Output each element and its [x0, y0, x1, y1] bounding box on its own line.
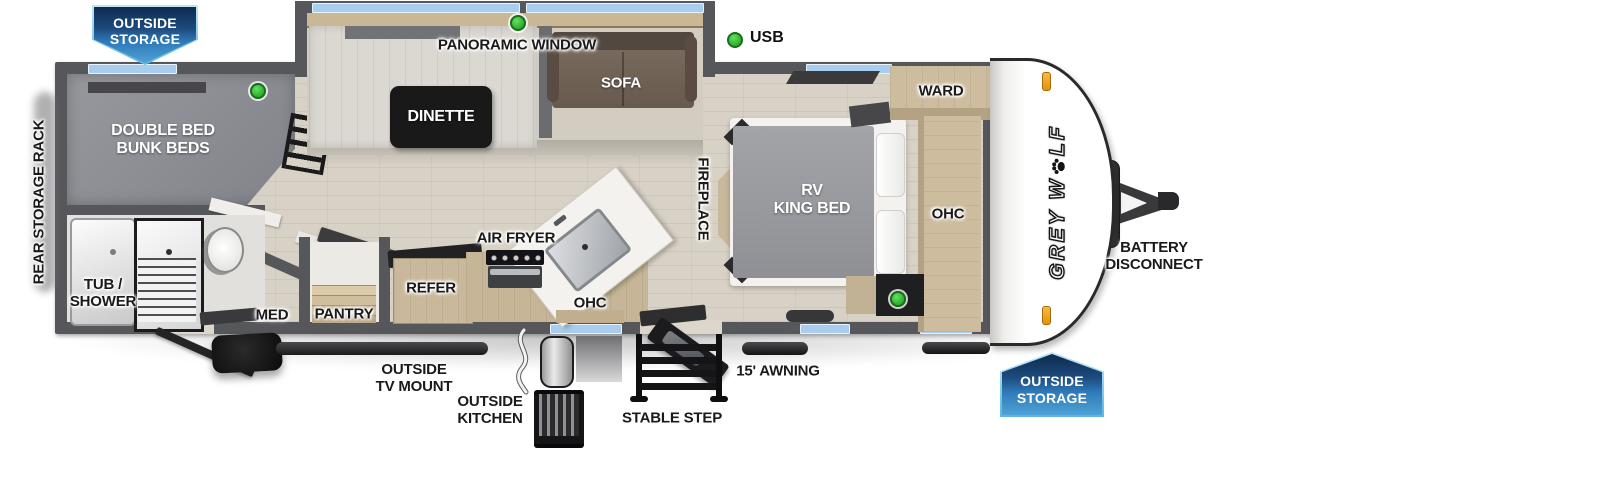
pantry-label: PANTRY — [315, 307, 374, 324]
battery-disconnect-label: BATTERY DISCONNECT — [1105, 240, 1202, 274]
panoramic-window-label: PANORAMIC WINDOW — [438, 38, 596, 55]
awning-label: 15' AWNING — [736, 364, 820, 381]
pantry-step-2 — [312, 295, 376, 305]
bedroom-ohc-cabinet — [918, 116, 981, 332]
bedroom-ohc-label: OHC — [932, 207, 965, 224]
stable-step-treads — [640, 344, 716, 392]
pantry-wall-left — [299, 237, 310, 322]
clearance-light-top — [1042, 72, 1051, 91]
tub-shower-label: TUB / SHOWER — [70, 277, 136, 311]
panoramic-window-left — [312, 3, 520, 13]
rear-storage-rack-label: REAR STORAGE RACK — [32, 120, 49, 285]
usb-indicator-dot — [890, 291, 906, 307]
outside-tv-mount-label: OUTSIDE TV MOUNT — [376, 362, 453, 396]
window-top-left — [88, 64, 177, 74]
panoramic-window-right — [526, 3, 704, 13]
fireplace-label: FIREPLACE — [694, 157, 711, 240]
outside-storage-badge-bottom: OUTSIDE STORAGE — [1000, 352, 1104, 417]
air-fryer-label: AIR FRYER — [477, 231, 555, 248]
usb-legend-dot — [727, 32, 743, 48]
outside-tv-mount-bar — [276, 342, 488, 355]
brand-logo: GREY W LF — [1045, 97, 1071, 307]
slideout-wall-left — [295, 1, 307, 77]
stable-step-foot-left — [630, 396, 648, 402]
paw-icon — [1050, 158, 1067, 175]
king-bed-label: RV KING BED — [774, 182, 851, 218]
wardrobe-label: WARD — [918, 84, 963, 101]
outside-grill-grate — [539, 394, 579, 436]
sofa-label: SOFA — [601, 76, 641, 93]
propane-tank — [540, 336, 574, 388]
bed-pillow-2 — [876, 210, 905, 274]
brand-logo-prefix: GREY W — [1046, 177, 1070, 280]
window-bedroom-1 — [800, 324, 850, 334]
refrigerator-label: REFER — [406, 281, 456, 298]
bedroom-wall-unit — [786, 310, 834, 322]
shower-door-stripes — [138, 258, 196, 322]
kitchen-ohc-label: OHC — [574, 296, 607, 313]
stable-step-label: STABLE STEP — [622, 411, 722, 428]
outside-storage-badge-bottom-label: OUTSIDE STORAGE — [1017, 373, 1087, 405]
usb-indicator-dot — [510, 15, 526, 31]
rear-entry-step — [211, 332, 283, 374]
med-cabinet-label: MED — [256, 308, 289, 325]
awning-roller-left — [742, 342, 808, 355]
floorplan-canvas: DOUBLE BED BUNK BEDS TUB / SHOWER MED PA… — [0, 0, 1600, 478]
air-fryer-oven-band — [490, 269, 540, 275]
toilet — [206, 227, 244, 273]
brand-logo-suffix: LF — [1046, 124, 1070, 156]
sink-drain — [582, 244, 588, 250]
clearance-light-bottom — [1042, 306, 1051, 325]
outside-storage-badge-top-label: OUTSIDE STORAGE — [110, 15, 180, 47]
bed-pillow-1 — [876, 133, 905, 197]
power-cord — [508, 328, 538, 398]
stable-step-foot-right — [710, 396, 728, 402]
stable-step-rail-right — [716, 334, 722, 400]
bedside-cabinet — [846, 276, 876, 314]
outside-storage-badge-top: OUTSIDE STORAGE — [92, 5, 198, 65]
shower-drain — [166, 249, 172, 255]
bunk-bed-frame — [88, 82, 206, 93]
usb-indicator-dot — [250, 83, 266, 99]
bunk-room-label: DOUBLE BED BUNK BEDS — [111, 122, 215, 158]
stove-cooktop — [486, 250, 544, 265]
outside-kitchen-label: OUTSIDE KITCHEN — [457, 394, 522, 428]
outside-kitchen-box — [576, 336, 622, 382]
bed-valance — [786, 71, 880, 84]
pantry-wall-right — [379, 237, 390, 322]
slideout-wall-right — [703, 1, 715, 77]
sofa-armrest-right — [685, 36, 697, 102]
pantry-step-1 — [312, 285, 376, 295]
tub-drain — [110, 249, 116, 255]
hitch-coupler — [1158, 192, 1179, 210]
awning-roller-right — [922, 342, 990, 354]
dinette-label: DINETTE — [407, 108, 474, 126]
usb-legend-label: USB — [750, 29, 784, 47]
